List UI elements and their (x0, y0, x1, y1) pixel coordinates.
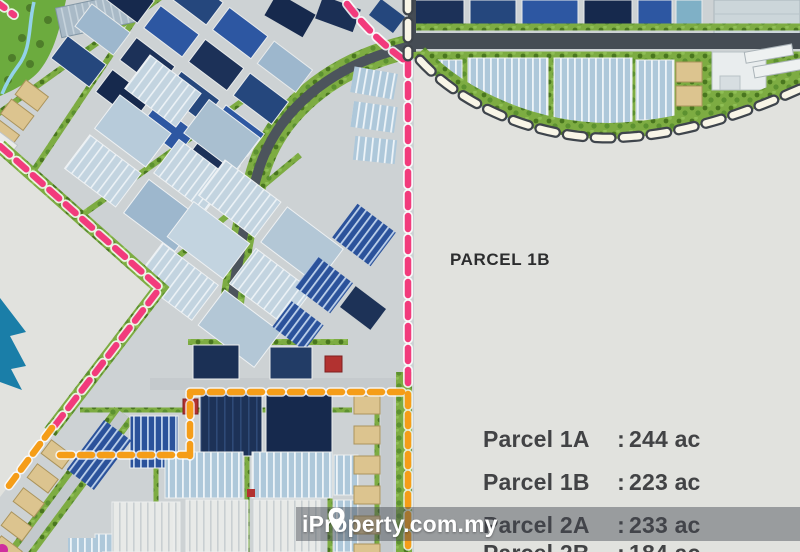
site-map-illustration (0, 0, 800, 552)
main-road (396, 33, 800, 49)
location-pin-icon (328, 507, 345, 533)
parcel-1b-label: PARCEL 1B (450, 250, 550, 270)
master-plan-screenshot: PARCEL 1B Parcel 1A:244 ac Parcel 1B:223… (0, 0, 800, 552)
watermark-bar: iProperty.com.my (296, 507, 800, 541)
